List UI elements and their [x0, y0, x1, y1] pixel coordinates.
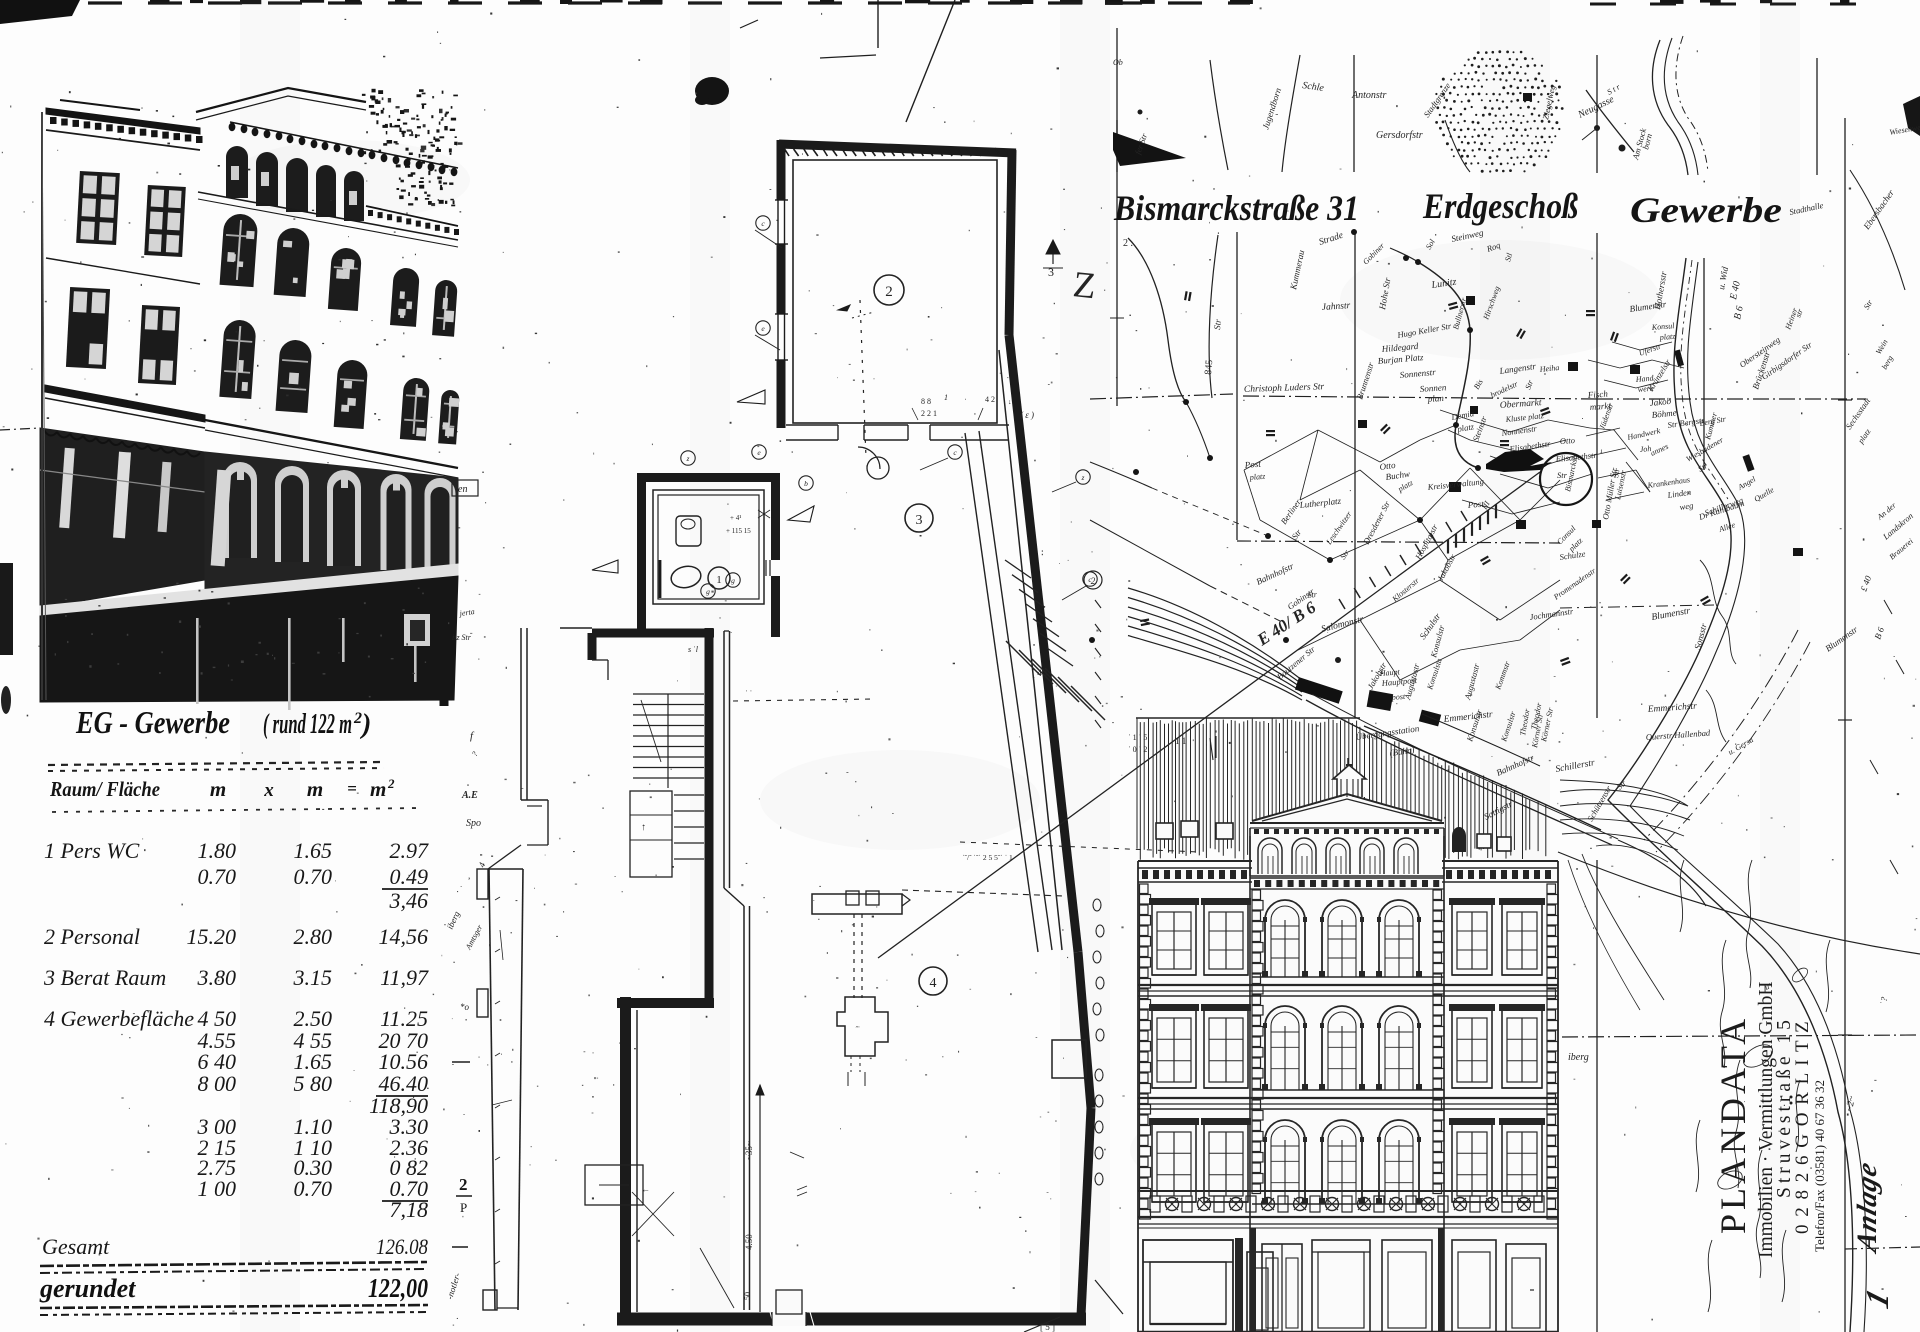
svg-text:weg: weg — [1679, 500, 1694, 512]
svg-text:m: m — [370, 777, 386, 801]
svg-text:EG - Gewerbe: EG - Gewerbe — [75, 704, 230, 740]
svg-text:2 2 1: 2 2 1 — [921, 409, 937, 418]
svg-text:plan: plan — [1426, 393, 1444, 404]
svg-text:ˈ: ˈ — [1062, 1056, 1065, 1066]
svg-text:Erdgeschoß: Erdgeschoß — [1422, 186, 1578, 226]
svg-text:x: x — [263, 780, 274, 801]
svg-text:Raum/ Fläche: Raum/ Fläche — [49, 777, 160, 801]
svg-text:3,46: 3,46 — [389, 888, 429, 913]
svg-text:126.08: 126.08 — [376, 1234, 428, 1259]
svg-text:0 2 8 2 6 G O R L I T Z: 0 2 8 2 6 G O R L I T Z — [1792, 1020, 1813, 1234]
svg-text:0.70: 0.70 — [294, 1176, 333, 1201]
svg-text:~35~: ~35~ — [744, 1141, 754, 1160]
svg-text:3.15: 3.15 — [293, 965, 333, 990]
svg-text:iberg: iberg — [1568, 1052, 1589, 1063]
svg-text:PLANDATA: PLANDATA — [1713, 1015, 1753, 1234]
svg-text:Fisch: Fisch — [1586, 389, 1608, 400]
svg-text:g: g — [706, 587, 710, 596]
svg-text:3.80: 3.80 — [197, 965, 237, 990]
svg-text:[ 4 ]: [ 4 ] — [1032, 668, 1047, 678]
svg-text:0.49: 0.49 — [390, 864, 429, 889]
svg-text:4: 4 — [930, 976, 937, 991]
svg-text:( rund 122 m: ( rund 122 m — [263, 709, 352, 740]
svg-text:4 2: 4 2 — [985, 395, 995, 404]
svg-text:1 00: 1 00 — [198, 1176, 237, 1201]
svg-text:Post: Post — [1243, 459, 1261, 470]
svg-text:2: 2 — [459, 1175, 468, 1194]
svg-text:↓: ↓ — [1008, 398, 1012, 406]
svg-text:ˈ: ˈ — [676, 679, 679, 688]
svg-text:1: 1 — [716, 574, 722, 586]
svg-text:4.50: 4.50 — [744, 1234, 754, 1250]
svg-text:+ 115 15: + 115 15 — [726, 527, 751, 535]
svg-text:ˈ: ˈ — [1018, 735, 1021, 744]
svg-text:Str: Str — [1212, 318, 1223, 330]
svg-text:Gersdorfstr: Gersdorfstr — [1376, 130, 1423, 141]
svg-text:en: en — [458, 484, 467, 495]
svg-text:122,00: 122,00 — [368, 1273, 428, 1303]
svg-text:11,97: 11,97 — [380, 965, 429, 990]
svg-text:4 Gewerbefläche: 4 Gewerbefläche — [44, 1006, 194, 1031]
svg-text:Z: Z — [1071, 264, 1098, 307]
svg-text:m: m — [210, 777, 226, 801]
svg-text:↑: ↑ — [641, 822, 646, 833]
svg-text:itz Str: itz Str — [452, 633, 472, 642]
svg-text:*o: *o — [460, 1002, 470, 1012]
svg-text:˙: ˙ — [455, 1317, 458, 1328]
svg-text:=: = — [347, 779, 357, 798]
svg-text:1.65: 1.65 — [294, 838, 333, 863]
svg-text:[ 5 ]: [ 5 ] — [1040, 1322, 1055, 1332]
svg-text:+ 4¹: + 4¹ — [730, 514, 741, 522]
svg-text:1 Pers WC: 1 Pers WC — [44, 838, 140, 863]
svg-text:Antonstr: Antonstr — [1351, 90, 1387, 101]
svg-text:5 80: 5 80 — [294, 1071, 333, 1096]
svg-text:8 8: 8 8 — [921, 397, 931, 406]
svg-text:ˆˈ: ˆˈ — [855, 1025, 860, 1034]
svg-text:2: 2 — [353, 710, 362, 727]
svg-text:P: P — [460, 1200, 467, 1215]
svg-text:←: ← — [641, 1184, 650, 1194]
svg-text:2 .: 2 . — [1123, 238, 1133, 249]
svg-text:8 00: 8 00 — [198, 1071, 237, 1096]
svg-text:Hand: Hand — [1634, 373, 1654, 384]
svg-text:2 Personal: 2 Personal — [44, 924, 140, 949]
svg-text:2.80: 2.80 — [294, 924, 333, 949]
svg-text:gerundet: gerundet — [39, 1274, 136, 1303]
svg-text:Jahnstr: Jahnstr — [1322, 301, 1351, 313]
svg-text:Bismarckstraße 31: Bismarckstraße 31 — [1113, 188, 1359, 228]
svg-text:2: 2 — [387, 776, 395, 791]
svg-text:z: z — [686, 454, 690, 463]
svg-text:7,18: 7,18 — [390, 1197, 429, 1222]
svg-text:ˈ: ˈ — [1900, 1183, 1903, 1192]
svg-text:50: 50 — [743, 1292, 752, 1300]
svg-text:A.E: A.E — [461, 790, 478, 801]
svg-text:s ˈl: s ˈl — [688, 645, 699, 654]
svg-text:15.20: 15.20 — [187, 924, 237, 949]
svg-text:ˈ ˈ: ˈ ˈ — [745, 689, 752, 698]
svg-text:0.70: 0.70 — [294, 864, 333, 889]
svg-text:platz: platz — [1248, 472, 1266, 482]
svg-text:z: z — [1081, 473, 1085, 482]
svg-text:platz: platz — [1658, 332, 1676, 342]
svg-text:b: b — [804, 479, 808, 488]
svg-text:14,56: 14,56 — [379, 924, 429, 949]
svg-text:Ob: Ob — [1113, 58, 1123, 67]
svg-text:Anlage: Anlage — [1852, 1158, 1882, 1257]
svg-text:1 1: 1 1 — [1175, 736, 1186, 746]
svg-text:2: 2 — [885, 284, 893, 300]
svg-text:ˈ: ˈ — [500, 1052, 503, 1062]
svg-text:2: 2 — [1091, 576, 1096, 586]
svg-text:’: ’ — [467, 876, 470, 886]
svg-text:Gesamt: Gesamt — [42, 1234, 110, 1259]
svg-text:0.70: 0.70 — [198, 864, 237, 889]
svg-text:3: 3 — [1048, 265, 1054, 279]
svg-text:( ε ): ( ε ) — [1020, 410, 1034, 420]
svg-text:ˈˆ/ˆ ˈˆˈ 2 5 5ˆˈ ˈ 1: ˈˆ/ˆ ˈˆˈ 2 5 5ˆˈ ˈ 1 — [962, 853, 1013, 862]
svg-text:m: m — [307, 777, 323, 801]
svg-text:3: 3 — [916, 513, 923, 528]
svg-text:Spo: Spo — [466, 818, 481, 829]
svg-text:2.97: 2.97 — [390, 838, 430, 863]
svg-text:Gewerbe: Gewerbe — [1630, 190, 1782, 230]
svg-text:1: 1 — [944, 393, 948, 402]
svg-text:g: g — [731, 576, 735, 585]
svg-text:Telefon/Fax (03581) 40 67 36 3: Telefon/Fax (03581) 40 67 36 32 — [1812, 1080, 1827, 1252]
svg-text:Otto: Otto — [1559, 435, 1575, 446]
svg-text:werk: werk — [1637, 384, 1654, 394]
svg-text:1.80: 1.80 — [198, 838, 237, 863]
svg-text:3 Berat Raum: 3 Berat Raum — [43, 965, 166, 990]
